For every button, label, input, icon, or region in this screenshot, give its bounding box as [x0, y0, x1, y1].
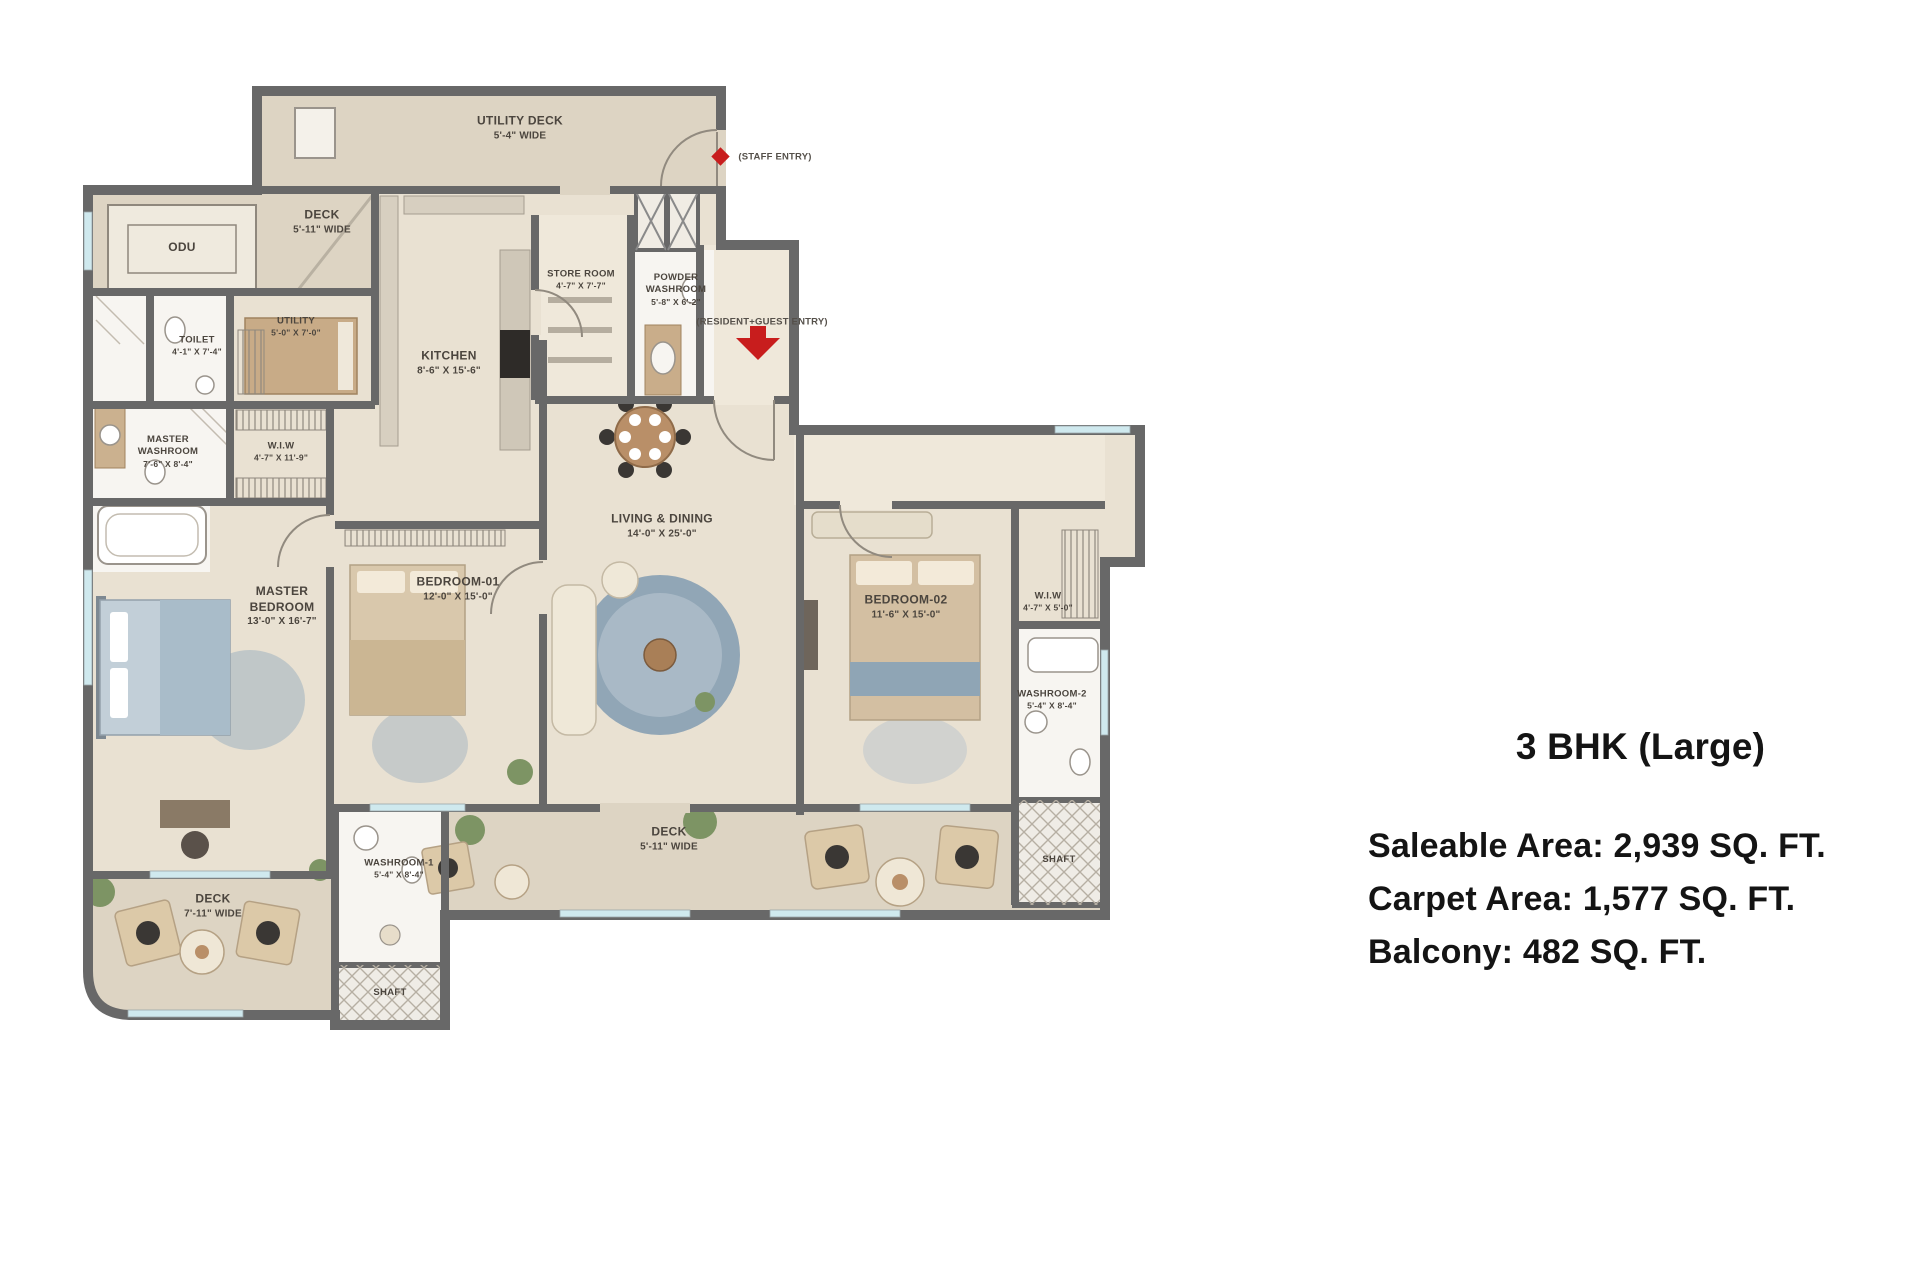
- odu-unit: [108, 205, 256, 293]
- floorplan-page: UTILITY DECK 5'-4" WIDE DECK 5'-11" WIDE…: [0, 0, 1920, 1280]
- info-panel: 3 BHK (Large) Saleable Area: 2,939 SQ. F…: [1368, 726, 1913, 979]
- balcony-area: Balcony: 482 SQ. FT.: [1368, 926, 1913, 979]
- staff-entry-label: (STAFF ENTRY): [738, 152, 811, 163]
- carpet-area: Carpet Area: 1,577 SQ. FT.: [1368, 873, 1913, 926]
- saleable-area: Saleable Area: 2,939 SQ. FT.: [1368, 820, 1913, 873]
- resident-entry-label: (RESIDENT+GUEST ENTRY): [696, 317, 828, 328]
- lift-shafts: [636, 192, 698, 250]
- utility-bed: [238, 318, 357, 394]
- area-details: Saleable Area: 2,939 SQ. FT. Carpet Area…: [1368, 820, 1913, 979]
- washing-machine: [295, 108, 335, 158]
- wiw2-wardrobe: [1062, 530, 1098, 618]
- floorplan-drawing: [0, 0, 1920, 1280]
- plan-title: 3 BHK (Large): [1368, 726, 1913, 768]
